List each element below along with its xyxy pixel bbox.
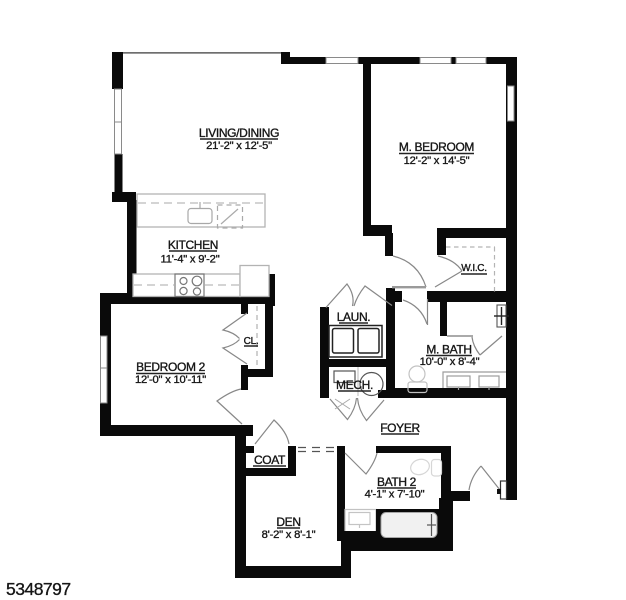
svg-text:5348797: 5348797	[6, 579, 71, 599]
svg-text:MECH.: MECH.	[336, 378, 373, 392]
svg-text:COAT: COAT	[254, 453, 286, 467]
svg-text:12'-2" x 14'-5": 12'-2" x 14'-5"	[404, 155, 470, 167]
svg-text:12'-0" x 10'-11": 12'-0" x 10'-11"	[135, 374, 206, 386]
svg-text:BATH 2: BATH 2	[377, 475, 417, 489]
svg-text:KITCHEN: KITCHEN	[168, 238, 218, 252]
svg-text:LAUN.: LAUN.	[337, 310, 371, 324]
svg-text:DEN: DEN	[276, 515, 300, 529]
svg-text:BEDROOM 2: BEDROOM 2	[136, 360, 206, 374]
svg-text:M. BATH: M. BATH	[426, 343, 471, 357]
svg-text:LIVING/DINING: LIVING/DINING	[199, 126, 279, 140]
svg-text:4'-1" x 7'-10": 4'-1" x 7'-10"	[365, 489, 425, 501]
svg-text:10'-0" x 8'-4": 10'-0" x 8'-4"	[420, 356, 480, 368]
svg-text:8'-2" x 8'-1": 8'-2" x 8'-1"	[262, 529, 316, 541]
svg-text:M. BEDROOM: M. BEDROOM	[399, 140, 475, 154]
svg-text:21'-2" x 12'-5": 21'-2" x 12'-5"	[206, 140, 272, 152]
svg-text:FOYER: FOYER	[380, 421, 420, 435]
svg-text:11'-4" x 9'-2": 11'-4" x 9'-2"	[161, 254, 220, 266]
svg-text:W.I.C.: W.I.C.	[461, 263, 486, 274]
